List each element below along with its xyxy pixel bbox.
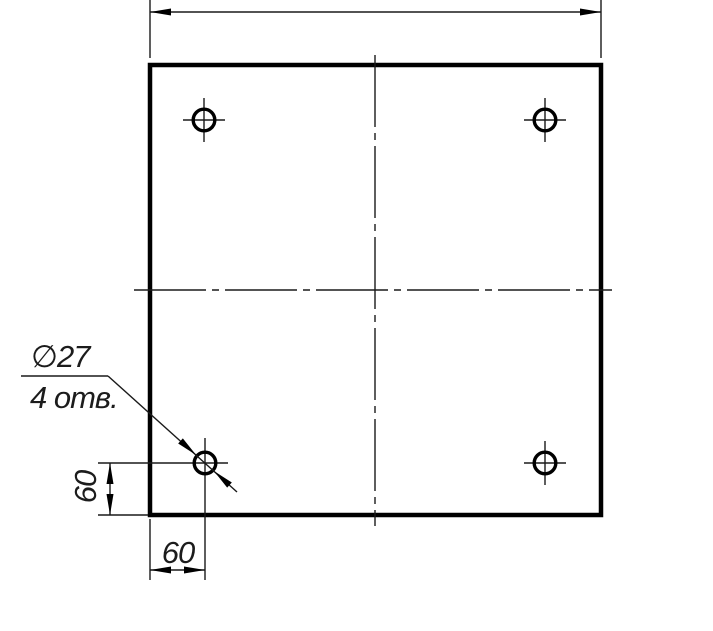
hole-top-right (524, 98, 566, 142)
dimension-left-vertical: 60 (68, 463, 148, 515)
dimension-value-bottom: 60 (162, 535, 195, 570)
dimension-bottom-horizontal: 60 (150, 519, 205, 580)
hole-bottom-right (524, 441, 566, 485)
dimension-value-left: 60 (68, 470, 103, 503)
engineering-drawing: ∅27 4 отв. 60 60 (0, 0, 713, 631)
arrow-left-icon (150, 9, 171, 16)
diameter-label: ∅27 (31, 339, 92, 374)
overall-width-dimension (150, 0, 601, 58)
hole-top-left (183, 98, 225, 142)
drawing-sheet: ∅27 4 отв. 60 60 (0, 0, 713, 631)
arrow-up-icon (107, 463, 114, 484)
hole-count-label: 4 отв. (30, 380, 118, 415)
arrow-right-icon (580, 9, 601, 16)
arrow-down-icon (107, 494, 114, 515)
